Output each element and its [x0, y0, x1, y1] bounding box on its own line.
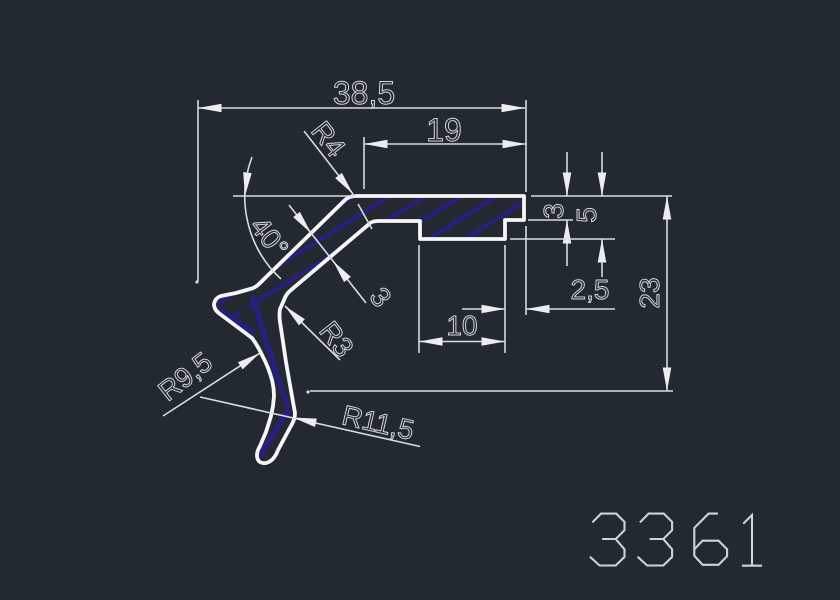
svg-text:23: 23: [634, 277, 665, 308]
svg-text:5: 5: [571, 207, 602, 223]
svg-text:2,5: 2,5: [571, 274, 610, 305]
svg-text:10: 10: [446, 310, 477, 341]
svg-text:38,5: 38,5: [333, 75, 395, 111]
svg-text:3: 3: [538, 203, 569, 219]
svg-text:19: 19: [426, 112, 462, 148]
